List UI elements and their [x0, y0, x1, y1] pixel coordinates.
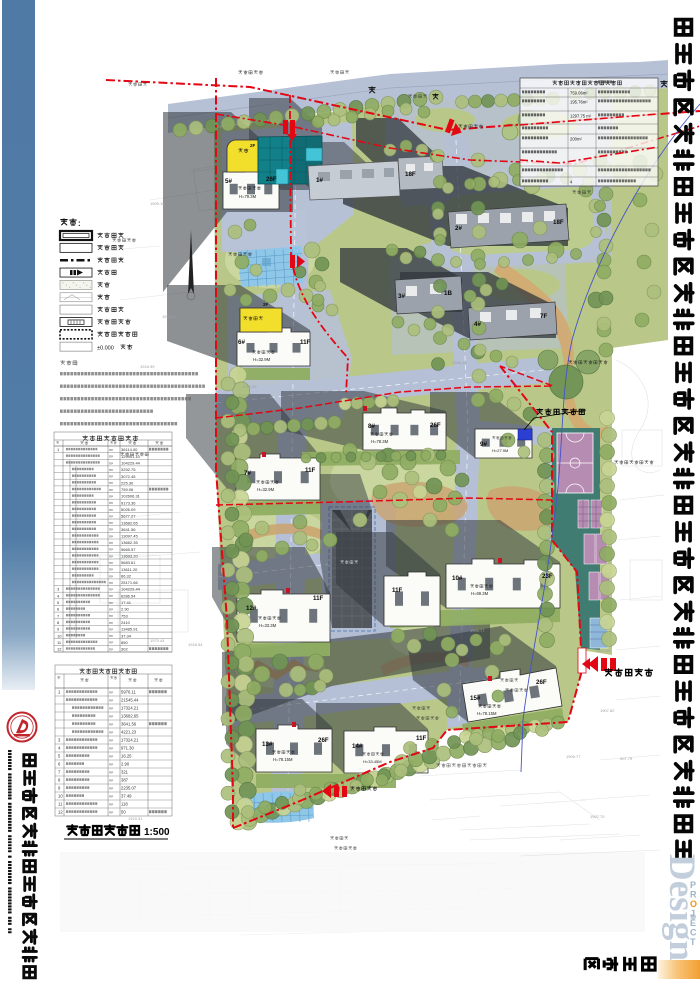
svg-text:18F: 18F: [553, 219, 564, 226]
svg-text:4#: 4#: [474, 321, 481, 328]
svg-text:104229.44: 104229.44: [121, 587, 141, 592]
svg-text:±0.000: ±0.000: [97, 346, 114, 352]
svg-text:13682.65: 13682.65: [121, 714, 139, 719]
svg-text:7#: 7#: [244, 470, 251, 477]
svg-text:50: 50: [121, 810, 126, 815]
svg-text:2235.07: 2235.07: [121, 786, 137, 791]
svg-text:2.90: 2.90: [121, 762, 130, 767]
svg-text:26F: 26F: [430, 422, 441, 429]
svg-text:T: T: [690, 937, 696, 947]
svg-text:6#: 6#: [238, 339, 245, 346]
svg-text:5677.27: 5677.27: [121, 514, 136, 519]
svg-text:13611.20: 13611.20: [121, 567, 138, 572]
svg-text:2F: 2F: [263, 302, 269, 307]
svg-text:1915.31: 1915.31: [128, 816, 143, 821]
svg-text:26F: 26F: [318, 737, 329, 744]
svg-text:195.76m²: 195.76m²: [570, 99, 588, 104]
svg-text:H=78.3M: H=78.3M: [371, 439, 389, 444]
svg-text:1B: 1B: [444, 290, 452, 297]
svg-text:11F: 11F: [392, 587, 403, 594]
svg-text:118: 118: [121, 802, 128, 807]
svg-text:1918.55: 1918.55: [162, 314, 177, 319]
svg-text:4221.23: 4221.23: [121, 730, 137, 735]
svg-text:11F: 11F: [305, 467, 316, 474]
svg-text:16.25: 16.25: [121, 754, 132, 759]
svg-text:200m²: 200m²: [570, 136, 582, 141]
svg-text:2410: 2410: [121, 620, 131, 625]
svg-text:9173.36: 9173.36: [121, 500, 136, 505]
svg-text:C: C: [690, 928, 697, 938]
svg-text:13682.65: 13682.65: [121, 520, 138, 525]
svg-text:H=78.15M: H=78.15M: [477, 711, 497, 716]
svg-text:3#: 3#: [398, 293, 405, 300]
svg-text:753: 753: [121, 613, 128, 618]
svg-text:2F: 2F: [250, 143, 256, 148]
svg-text::: :: [78, 219, 81, 228]
svg-text:3641.56: 3641.56: [121, 722, 137, 727]
svg-text:66.32: 66.32: [121, 573, 132, 578]
svg-text:1909.77: 1909.77: [470, 628, 485, 633]
svg-text:21545.44: 21545.44: [121, 698, 139, 703]
svg-text:H=27.9M: H=27.9M: [492, 448, 508, 453]
svg-text:5026.09: 5026.09: [121, 507, 136, 512]
svg-text:13097.45: 13097.45: [121, 534, 138, 539]
svg-text:13485.91: 13485.91: [121, 627, 138, 632]
svg-text:17324.21: 17324.21: [121, 706, 139, 711]
svg-text:5#: 5#: [225, 178, 232, 185]
svg-text:10: 10: [58, 794, 63, 799]
svg-text:17324.21: 17324.21: [121, 738, 139, 743]
svg-text:9#: 9#: [480, 441, 487, 448]
svg-text:13693.20: 13693.20: [121, 554, 138, 559]
svg-text:321: 321: [121, 770, 129, 775]
svg-text:13662.35: 13662.35: [121, 540, 138, 545]
svg-text:1909.15: 1909.15: [150, 201, 165, 206]
svg-text:H=32.9M: H=32.9M: [253, 357, 271, 362]
svg-text:11F: 11F: [416, 735, 427, 742]
svg-text:11: 11: [58, 802, 63, 807]
svg-text:971.30: 971.30: [121, 746, 134, 751]
svg-text:13#: 13#: [262, 741, 273, 748]
svg-text:1907.82: 1907.82: [600, 708, 615, 713]
svg-text:12: 12: [58, 810, 63, 815]
svg-text:102606.31: 102606.31: [121, 494, 141, 499]
svg-text:3292.75: 3292.75: [121, 467, 136, 472]
svg-text:H=32.9M: H=32.9M: [257, 487, 275, 492]
svg-text:1907.86: 1907.86: [596, 648, 611, 653]
svg-text:18F: 18F: [405, 171, 416, 178]
svg-text:26F: 26F: [536, 679, 547, 686]
svg-text:1916.30: 1916.30: [242, 384, 257, 389]
svg-text:1909.77: 1909.77: [566, 754, 581, 759]
svg-text:26F: 26F: [266, 176, 277, 183]
svg-text:2.90: 2.90: [121, 607, 130, 612]
svg-text:1907.70: 1907.70: [590, 814, 605, 819]
svg-text:O: O: [690, 899, 697, 909]
svg-text:1:500: 1:500: [144, 827, 170, 838]
svg-text:H=78.15M: H=78.15M: [273, 757, 293, 762]
svg-text:907.79: 907.79: [620, 756, 633, 761]
svg-text:J: J: [690, 909, 695, 919]
svg-text:225.30: 225.30: [121, 480, 134, 485]
svg-text:8#: 8#: [368, 423, 375, 430]
svg-text:5683.61: 5683.61: [121, 560, 136, 565]
svg-text:10#: 10#: [452, 575, 463, 582]
svg-text:11F: 11F: [313, 595, 324, 602]
svg-text:37.49: 37.49: [121, 794, 132, 799]
svg-text:5976.11: 5976.11: [121, 690, 136, 695]
svg-text:36114.00: 36114.00: [121, 447, 138, 452]
svg-text:12: 12: [57, 647, 62, 652]
svg-text:10: 10: [57, 633, 62, 638]
svg-text:E: E: [690, 918, 696, 928]
svg-text:1906.12: 1906.12: [452, 360, 467, 365]
svg-text:H=33.3M: H=33.3M: [259, 623, 277, 628]
svg-text:104229.44: 104229.44: [121, 460, 141, 465]
svg-text:387: 387: [121, 778, 129, 783]
svg-text:850: 850: [121, 640, 128, 645]
svg-text:1#: 1#: [316, 177, 323, 184]
svg-text:1918.99: 1918.99: [140, 364, 155, 369]
svg-text:P: P: [690, 880, 696, 890]
svg-text:3072.45: 3072.45: [121, 474, 136, 479]
svg-text:1918.54: 1918.54: [188, 642, 203, 647]
svg-text:17.41: 17.41: [121, 600, 132, 605]
svg-text:6286.54: 6286.54: [121, 593, 136, 598]
svg-text:11F: 11F: [300, 339, 311, 346]
svg-text:302: 302: [121, 647, 128, 652]
svg-text:25171.66: 25171.66: [121, 580, 138, 585]
svg-text:1297.75 m²: 1297.75 m²: [570, 113, 592, 118]
svg-text:R: R: [690, 890, 697, 900]
svg-text:5665.57: 5665.57: [121, 547, 136, 552]
svg-text:129901.10: 129901.10: [121, 454, 141, 459]
svg-text:759.06: 759.06: [121, 487, 134, 492]
svg-text:759.06m²: 759.06m²: [570, 90, 588, 95]
svg-text:23F: 23F: [542, 573, 553, 580]
svg-text:37.34: 37.34: [121, 633, 132, 638]
svg-text:15#: 15#: [470, 695, 481, 702]
svg-text:H=79.3M: H=79.3M: [239, 194, 257, 199]
svg-text:12#: 12#: [246, 605, 257, 612]
svg-text:H=69.3M: H=69.3M: [471, 591, 489, 596]
svg-text:2#: 2#: [455, 225, 462, 232]
svg-text:7F: 7F: [540, 313, 547, 320]
svg-text:3641.56: 3641.56: [121, 527, 136, 532]
svg-text:H=33.45M: H=33.45M: [363, 759, 382, 764]
svg-text:14#: 14#: [352, 743, 363, 750]
